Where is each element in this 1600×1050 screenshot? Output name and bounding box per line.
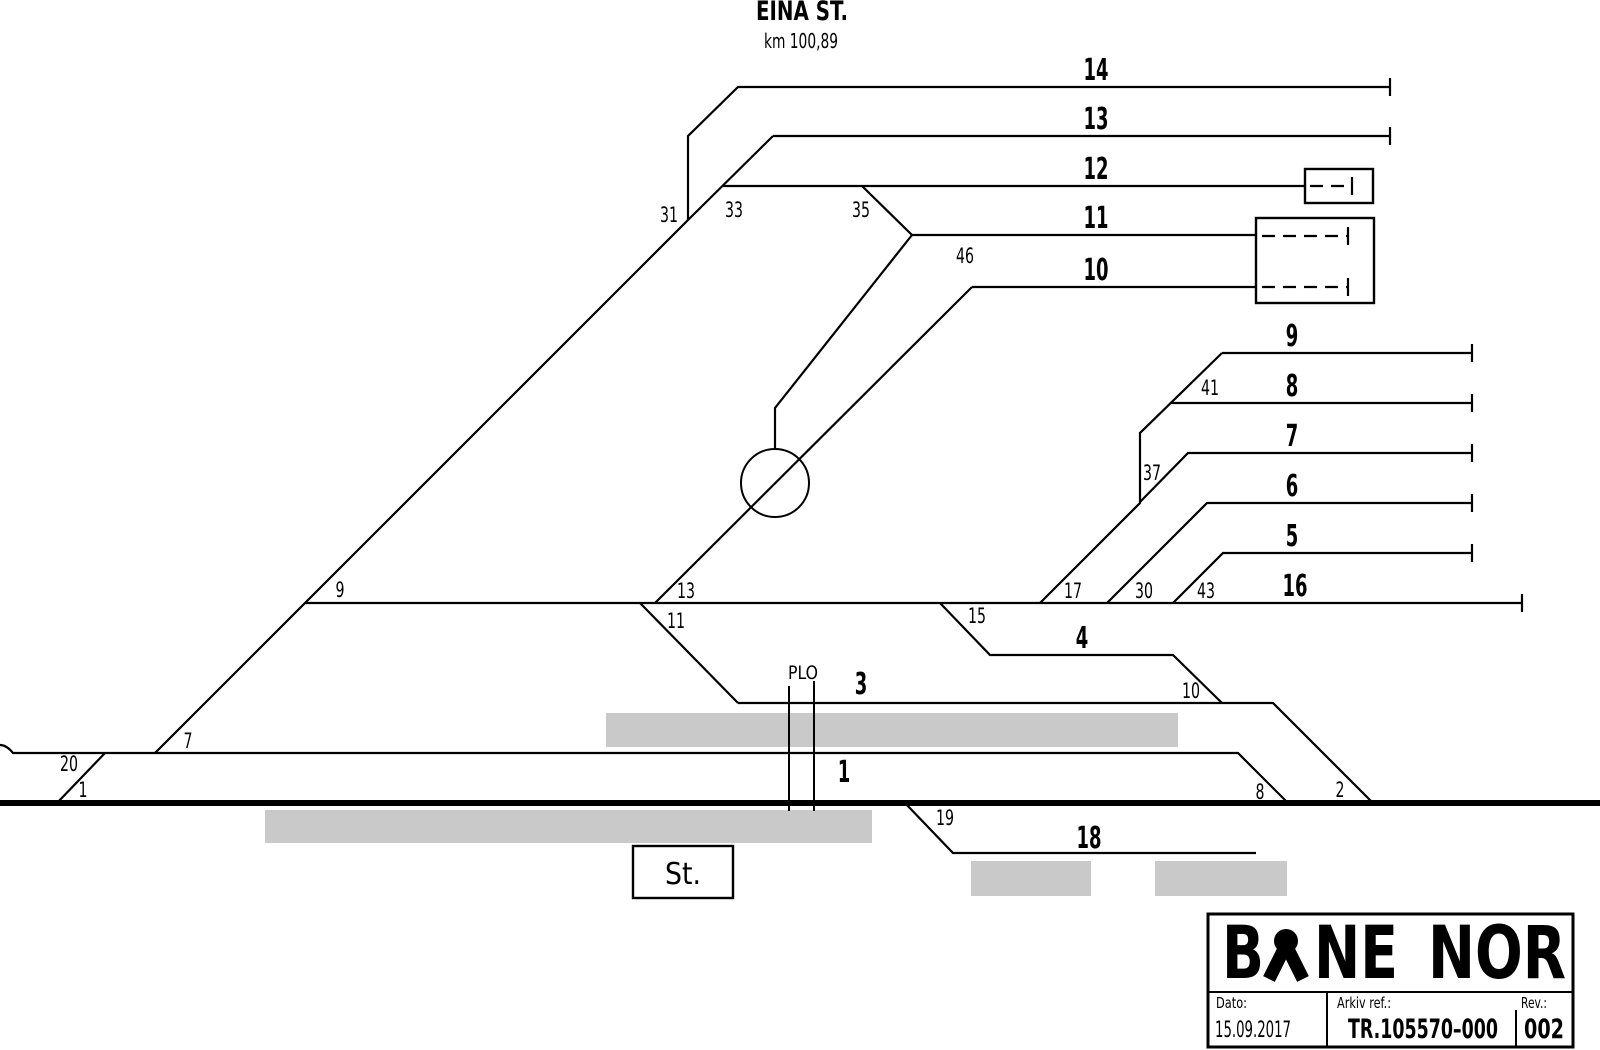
upper-yard-line xyxy=(0,745,1288,803)
switch-label-46: 46 xyxy=(956,244,974,268)
logo-letters-ne: NE xyxy=(1314,911,1398,996)
switch-label-30: 30 xyxy=(1135,579,1153,603)
archive-ref-value: TR.105570–000 xyxy=(1348,1014,1498,1045)
station-km: km 100,89 xyxy=(764,29,838,53)
shed-buildings xyxy=(1256,169,1374,303)
switch-label-20: 20 xyxy=(60,752,78,776)
main-yard-diagonal xyxy=(155,136,773,753)
switch-label-41: 41 xyxy=(1201,376,1219,400)
track-label-13: 13 xyxy=(1084,102,1109,137)
loading-platform-2 xyxy=(1155,861,1287,896)
track-label-4: 4 xyxy=(1076,621,1089,656)
date-label: Dato: xyxy=(1216,994,1247,1012)
station-building-label: St. xyxy=(665,857,701,892)
track-label-14: 14 xyxy=(1084,53,1109,88)
switch-label-33: 33 xyxy=(725,198,743,222)
logo-a-legs xyxy=(1269,951,1303,979)
main-platform xyxy=(265,810,872,843)
station-title: EINA ST. xyxy=(756,0,848,27)
switch-label-9: 9 xyxy=(336,578,345,602)
rev-value: 002 xyxy=(1524,1014,1564,1045)
switch-label-31: 31 xyxy=(660,203,678,227)
switch-46-turntable-link xyxy=(775,235,912,449)
switch-label-17: 17 xyxy=(1064,579,1082,603)
track-label-1: 1 xyxy=(838,755,851,790)
date-value: 15.09.2017 xyxy=(1215,1018,1291,1043)
station-building: St. xyxy=(633,846,733,898)
switch-17-branch xyxy=(1040,353,1222,603)
track-label-10: 10 xyxy=(1084,253,1109,288)
track-label-8: 8 xyxy=(1286,369,1299,404)
switch-label-37: 37 xyxy=(1143,461,1161,485)
switch-label-8: 8 xyxy=(1256,780,1265,804)
rev-label: Rev.: xyxy=(1521,994,1547,1012)
shed-buffer-stops xyxy=(1348,177,1352,296)
logo-letters-nor: NOR xyxy=(1428,911,1566,996)
switch-label-2: 2 xyxy=(1336,778,1345,802)
turntable-diagonal xyxy=(655,287,972,603)
logo-a-icon xyxy=(1269,929,1303,979)
switch-label-1: 1 xyxy=(79,778,88,802)
track-14-line xyxy=(688,87,1390,220)
switch-label-15: 15 xyxy=(968,604,986,628)
track-5-line xyxy=(1173,553,1472,603)
switch-label-19: 19 xyxy=(936,806,954,830)
track-7-line xyxy=(1140,453,1472,502)
buffer-stops xyxy=(1390,78,1522,612)
track-label-9: 9 xyxy=(1286,319,1299,354)
switch-label-10: 10 xyxy=(1182,679,1200,703)
island-platform xyxy=(606,713,1178,747)
track-label-18: 18 xyxy=(1077,821,1102,856)
track-schematic-drawing: PLO St. EINA ST. km 100,89 1413121110987… xyxy=(0,0,1600,1050)
switch-label-11: 11 xyxy=(667,609,685,633)
track-label-7: 7 xyxy=(1286,419,1299,454)
switch-label-7: 7 xyxy=(184,729,193,753)
track-label-3: 3 xyxy=(855,667,868,702)
switch-label-43: 43 xyxy=(1197,579,1215,603)
track-label-11: 11 xyxy=(1084,201,1109,236)
switch-label-35: 35 xyxy=(852,198,870,222)
shed-box-tracks-10-11 xyxy=(1256,218,1374,303)
switch-label-13: 13 xyxy=(677,579,695,603)
archive-ref-label: Arkiv ref.: xyxy=(1337,994,1391,1012)
track-label-12: 12 xyxy=(1084,152,1109,187)
track-label-16: 16 xyxy=(1283,569,1308,604)
bane-nor-logo: B NE NOR xyxy=(1222,911,1566,996)
track-label-5: 5 xyxy=(1286,519,1299,554)
logo-letter-b: B xyxy=(1222,911,1264,996)
switch-11-diagonal xyxy=(640,603,738,703)
plo-label: PLO xyxy=(788,662,818,684)
title-block: B NE NOR Dato: 15.09.2017 Arkiv ref.: TR… xyxy=(1208,911,1573,1047)
loading-platform-1 xyxy=(971,861,1091,896)
track-label-6: 6 xyxy=(1286,469,1299,504)
